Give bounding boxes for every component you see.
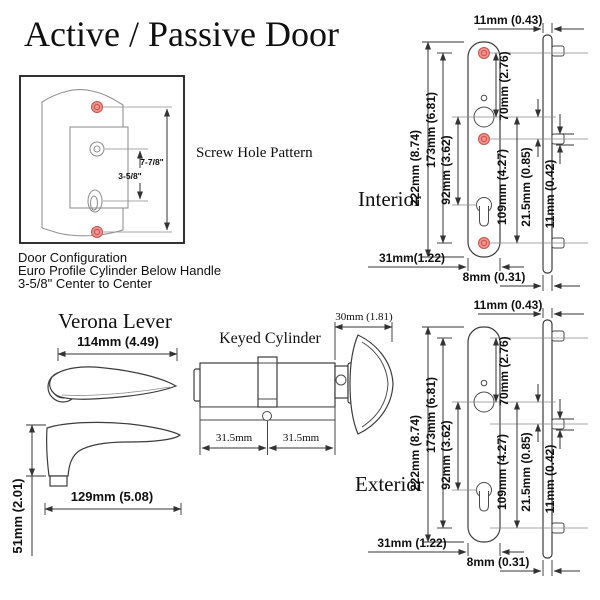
exterior-dim-handle-to-cylinder: 92mm (3.62) [439,420,453,489]
interior-label: Interior [358,187,421,211]
exterior-label: Exterior [355,472,424,496]
exterior-dim-side-width: 8mm (0.31) [467,555,530,569]
exterior-dim-handle-to-screw-bottom: 109mm (4.27) [495,434,509,510]
exterior-dim-peg-offset: 11mm (0.42) [543,445,557,514]
cylinder-dim-left-half: 31.5mm [216,432,253,444]
exterior-dim-mid-offset: 21.5mm (0.85) [519,432,533,511]
interior-assembly: 11mm (0.43) 222mm (8.74) 173mm (6.81) 92… [358,13,588,291]
cylinder-body [194,357,335,421]
interior-dim-screw-to-handle: 70mm (2.76) [497,51,511,120]
dim-center-spacing: 3-5/8" [118,171,141,181]
lever-dim-side-length: 129mm (5.08) [71,489,153,504]
exterior-assembly: 11mm (0.43) 222mm (8.74) 173mm (6.81) 92… [355,298,588,576]
exterior-dim-screw-to-handle: 70mm (2.76) [497,336,511,405]
lever-top-view [48,367,176,402]
interior-dim-peg-offset: 11mm (0.42) [543,160,557,229]
interior-dim-screw-span: 173mm (6.81) [424,92,438,168]
screw-hole-pattern-box: 7-7/8" 3-5/8" Screw Hole Pattern Door Co… [18,76,313,291]
dim-total-spacing: 7-7/8" [140,157,163,167]
keyed-cylinder-section: Keyed Cylinder 30mm (1.81) 31.5mm 31.5mm [194,311,393,455]
exterior-dim-screw-span: 173mm (6.81) [424,377,438,453]
lever-dim-top-length: 114mm (4.49) [77,334,159,349]
door-hardware-diagram: Active / Passive Door [0,0,600,600]
interior-dim-top-offset: 11mm (0.43) [474,13,543,27]
exterior-dim-top-offset: 11mm (0.43) [474,298,543,312]
verona-lever-section: Verona Lever 114mm (4.49) 129mm (5.08) 5… [10,309,181,556]
interior-dim-plate-width: 31mm(1.22) [379,251,445,265]
cylinder-dim-right-half: 31.5mm [283,432,320,444]
page-title: Active / Passive Door [24,14,339,54]
verona-lever-label: Verona Lever [58,309,172,333]
diagram-canvas: Active / Passive Door [0,0,600,600]
door-configuration-drawing: 7-7/8" 3-5/8" [42,90,172,238]
interior-dim-handle-to-screw-bottom: 109mm (4.27) [495,149,509,225]
door-configuration-caption: Door Configuration Euro Profile Cylinder… [18,250,221,291]
interior-dim-handle-to-cylinder: 92mm (3.62) [439,135,453,204]
keyed-cylinder-label: Keyed Cylinder [219,330,321,347]
interior-dim-mid-offset: 21.5mm (0.85) [519,147,533,226]
screw-hole-pattern-label: Screw Hole Pattern [196,145,313,161]
interior-dim-side-width: 8mm (0.31) [463,270,526,284]
lever-side-view [47,422,180,486]
exterior-dim-plate-width: 31mm (1.22) [377,536,446,550]
screw-hole-bottom [92,227,103,238]
cylinder-dim-thumbturn: 30mm (1.81) [335,311,393,323]
lever-dim-height: 51mm (2.01) [10,478,25,553]
screw-hole-top [92,102,103,113]
thumbturn [335,335,393,434]
caption-line-3: 3-5/8" Center to Center [18,276,153,291]
